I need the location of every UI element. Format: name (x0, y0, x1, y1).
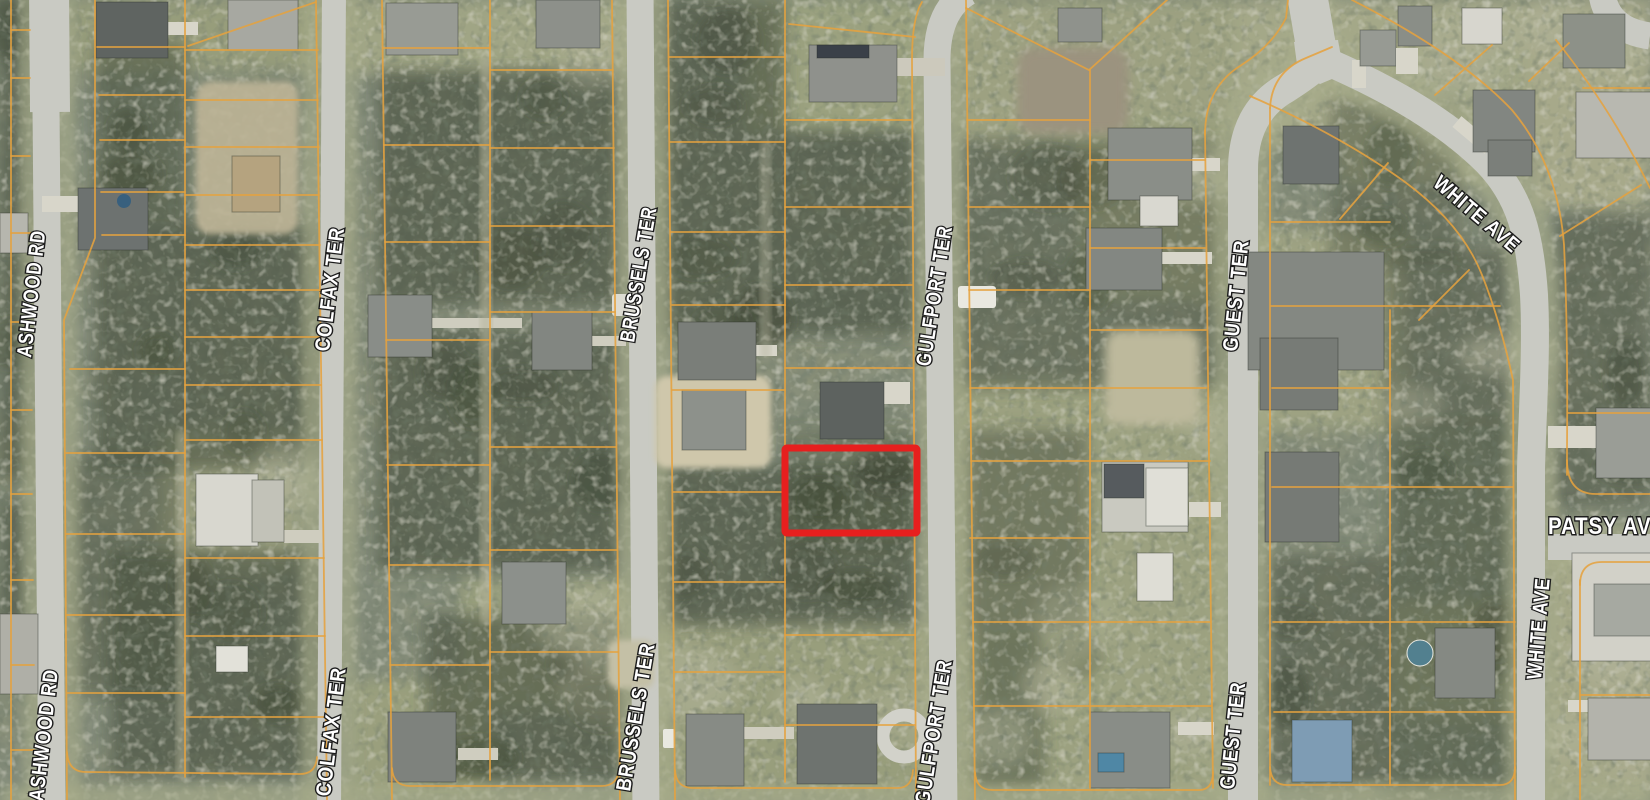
svg-text:PATSY AVE: PATSY AVE (1548, 513, 1650, 540)
